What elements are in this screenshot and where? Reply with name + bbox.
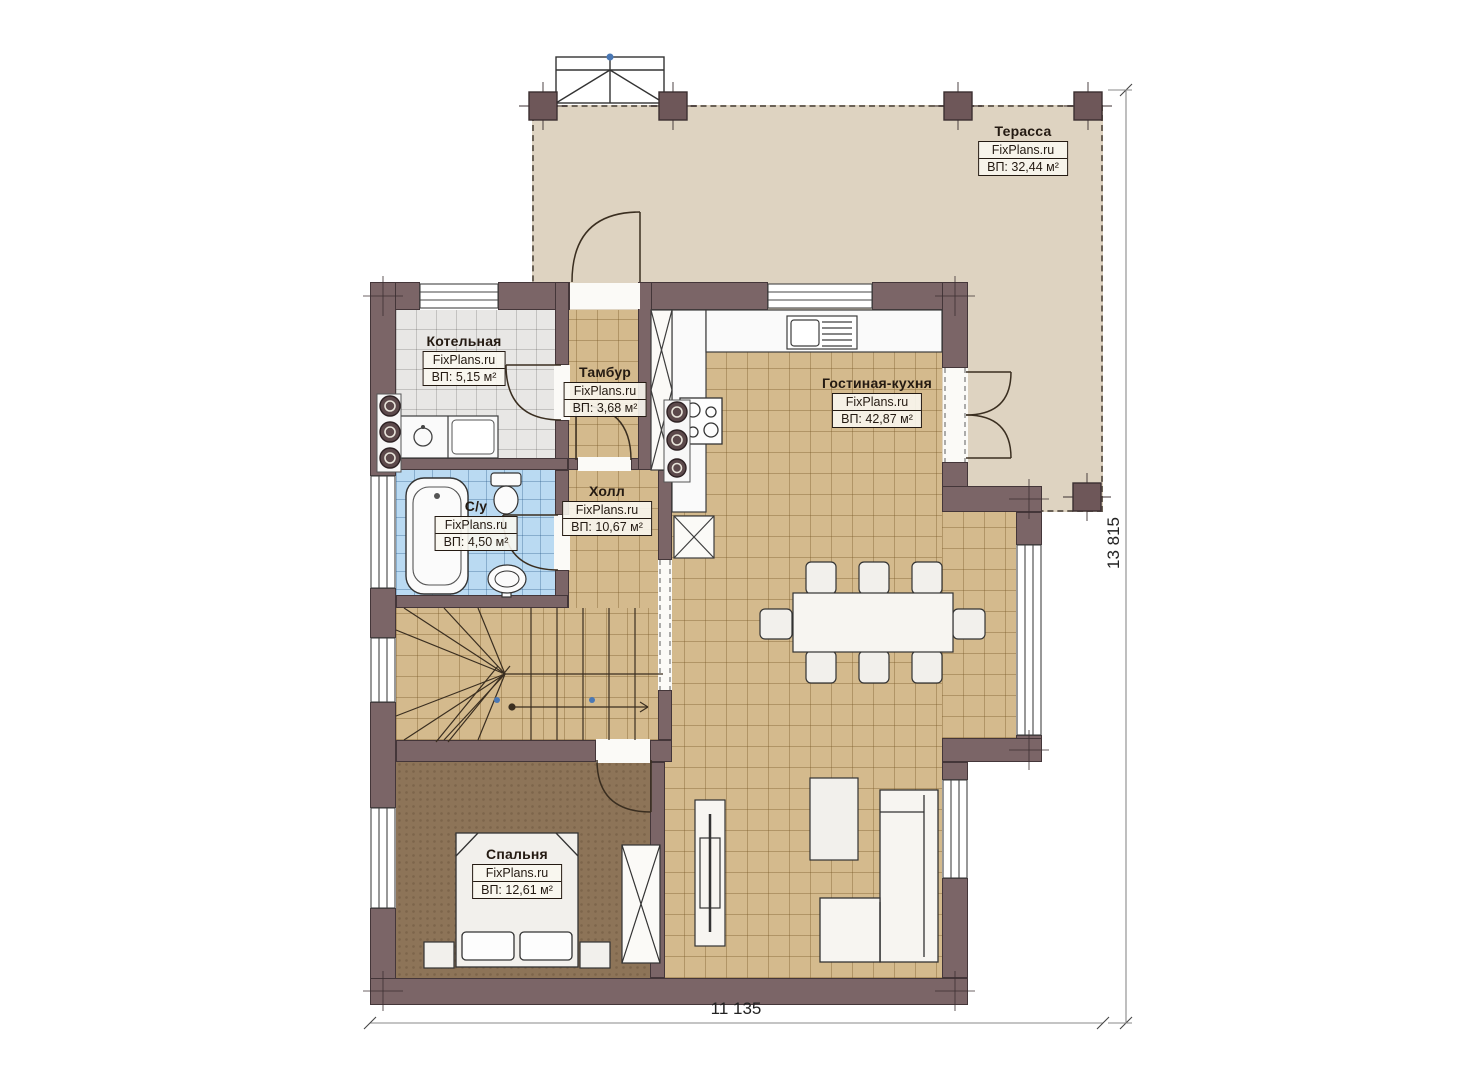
living-bay-floor [942, 512, 1016, 738]
watermark: FixPlans.ru [436, 517, 517, 534]
wall-segment [396, 595, 568, 608]
watermark: FixPlans.ru [833, 394, 921, 411]
wall-segment [942, 738, 1042, 762]
room-info-box: FixPlans.ru ВП: 4,50 м² [435, 516, 518, 551]
wall-segment [555, 282, 569, 365]
room-label-terrace: Терасса FixPlans.ru ВП: 32,44 м² [978, 123, 1068, 176]
room-info-box: FixPlans.ru ВП: 42,87 м² [832, 393, 922, 428]
wall-segment [942, 282, 968, 368]
wall-segment [650, 740, 672, 762]
wall-segment [658, 470, 672, 560]
wall-segment [650, 762, 665, 978]
room-title: Спальня [472, 846, 562, 862]
room-label-bedroom: Спальня FixPlans.ru ВП: 12,61 м² [472, 846, 562, 899]
room-label-vestibule: Тамбур FixPlans.ru ВП: 3,68 м² [564, 364, 647, 417]
room-info-box: FixPlans.ru ВП: 10,67 м² [562, 501, 652, 536]
room-title: Гостиная-кухня [822, 375, 932, 391]
wall-segment [1016, 512, 1042, 545]
room-title: Тамбур [564, 364, 647, 380]
wall-segment [396, 458, 568, 470]
room-info-box: FixPlans.ru ВП: 3,68 м² [564, 382, 647, 417]
wall-segment [370, 282, 396, 476]
room-area: ВП: 32,44 м² [979, 159, 1067, 175]
watermark: FixPlans.ru [979, 142, 1067, 159]
stairs-floor [396, 608, 663, 740]
room-area: ВП: 3,68 м² [565, 400, 646, 416]
wall-segment [942, 462, 968, 488]
room-area: ВП: 12,61 м² [473, 882, 561, 898]
room-area: ВП: 10,67 м² [563, 519, 651, 535]
wall-segment [370, 588, 396, 638]
wall-segment [396, 740, 596, 762]
wall-segment [658, 690, 672, 740]
watermark: FixPlans.ru [424, 352, 505, 369]
room-label-boiler: Котельная FixPlans.ru ВП: 5,15 м² [423, 333, 506, 386]
wall-segment [942, 486, 1042, 512]
room-title: Холл [562, 483, 652, 499]
wall-segment [370, 702, 396, 808]
watermark: FixPlans.ru [473, 865, 561, 882]
room-info-box: FixPlans.ru ВП: 32,44 м² [978, 141, 1068, 176]
wall-segment [370, 978, 968, 1005]
wall-segment [640, 282, 768, 310]
room-area: ВП: 5,15 м² [424, 369, 505, 385]
dimension-width-label: 11 135 [711, 999, 762, 1019]
room-label-bathroom: С/у FixPlans.ru ВП: 4,50 м² [435, 498, 518, 551]
room-label-living-kitchen: Гостиная-кухня FixPlans.ru ВП: 42,87 м² [822, 375, 932, 428]
room-area: ВП: 42,87 м² [833, 411, 921, 427]
entry-steps [556, 54, 664, 104]
floor-plan-canvas: Терасса FixPlans.ru ВП: 32,44 м² Котельн… [0, 0, 1473, 1080]
room-info-box: FixPlans.ru ВП: 12,61 м² [472, 864, 562, 899]
room-area: ВП: 4,50 м² [436, 534, 517, 550]
wall-segment [942, 878, 968, 978]
room-title: Котельная [423, 333, 506, 349]
dimension-height-label: 13 815 [1104, 517, 1124, 569]
room-info-box: FixPlans.ru ВП: 5,15 м² [423, 351, 506, 386]
watermark: FixPlans.ru [563, 502, 651, 519]
wall-segment [942, 762, 968, 780]
watermark: FixPlans.ru [565, 383, 646, 400]
room-title: С/у [435, 498, 518, 514]
room-title: Терасса [978, 123, 1068, 139]
wall-segment [568, 458, 578, 470]
room-label-hall: Холл FixPlans.ru ВП: 10,67 м² [562, 483, 652, 536]
